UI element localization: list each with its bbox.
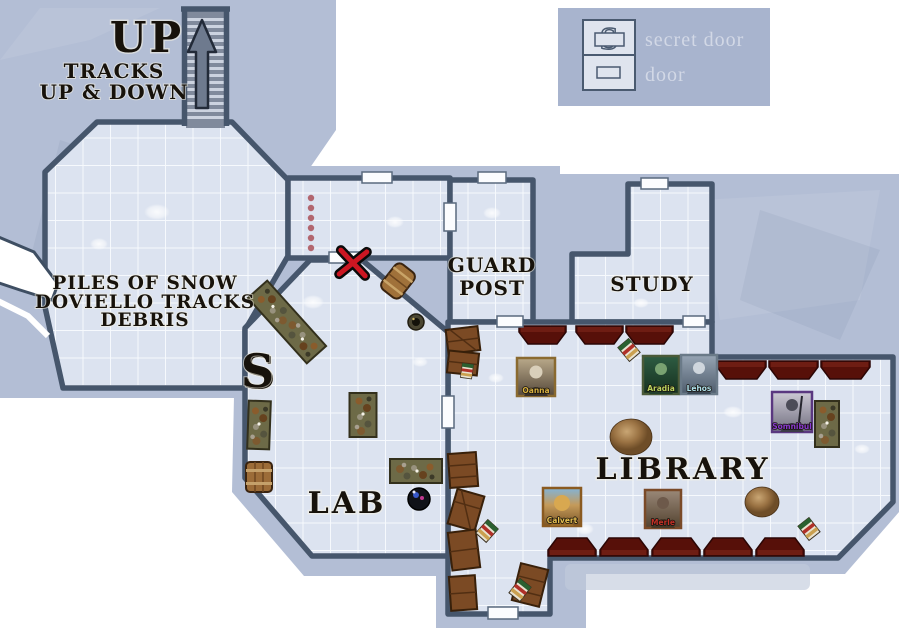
label-snow-1: PILES OF SNOW <box>52 273 237 294</box>
room-guard-post-floor <box>450 180 533 322</box>
legend: S secret door door <box>558 8 770 106</box>
lab-table <box>390 459 442 483</box>
portrait <box>693 362 705 374</box>
door[interactable] <box>497 316 523 327</box>
bench <box>717 361 766 379</box>
portrait <box>554 495 570 511</box>
dungeon-map-screenshot: Oanna Aradia Lehos Somnibul Calvert <box>0 0 902 628</box>
book-pile <box>460 363 473 379</box>
barrel <box>246 462 272 492</box>
portrait <box>530 366 543 379</box>
character-token[interactable]: Somnibul <box>772 392 812 432</box>
lab-table <box>815 401 839 447</box>
portrait <box>786 399 798 411</box>
label-snow-3: DEBRIS <box>100 310 189 331</box>
lab-table <box>350 393 377 437</box>
bench <box>576 326 623 344</box>
boulder <box>610 419 652 455</box>
bench <box>600 538 648 556</box>
portrait <box>655 363 667 375</box>
bench <box>769 361 818 379</box>
pot <box>408 314 424 330</box>
label-study: STUDY <box>610 272 693 296</box>
character-token[interactable]: Aradia <box>643 356 679 394</box>
bench <box>519 326 566 344</box>
boulder <box>745 487 779 517</box>
legend-secret-door-label: secret door <box>645 29 744 51</box>
bench <box>704 538 752 556</box>
door[interactable] <box>444 203 456 231</box>
door[interactable] <box>683 316 705 327</box>
token-name: Merle <box>651 518 675 527</box>
legend-door-label: door <box>645 64 686 86</box>
label-tracks-2: UP & DOWN <box>40 80 189 104</box>
scrying-orb[interactable] <box>408 488 430 510</box>
token-name: Oanna <box>522 386 549 395</box>
character-token[interactable]: Oanna <box>517 358 555 396</box>
door[interactable] <box>362 172 392 183</box>
door[interactable] <box>488 607 518 619</box>
dungeon-map-canvas: Oanna Aradia Lehos Somnibul Calvert <box>0 0 902 628</box>
lab-table <box>247 401 271 450</box>
portrait <box>657 497 669 509</box>
bench <box>626 326 673 344</box>
character-token[interactable]: Lehos <box>681 355 717 394</box>
label-lab: LAB <box>308 486 387 521</box>
lower-alcove-panel <box>565 564 810 590</box>
crate <box>448 452 478 488</box>
token-name: Somnibul <box>772 422 812 431</box>
door[interactable] <box>641 178 668 189</box>
crate <box>448 529 480 570</box>
token-name: Aradia <box>647 384 675 393</box>
label-up: UP <box>110 13 184 62</box>
stairs-up <box>181 8 230 128</box>
bench <box>821 361 870 379</box>
bench <box>548 538 596 556</box>
token-name: Calvert <box>547 516 578 525</box>
door[interactable] <box>478 172 506 183</box>
label-library: LIBRARY <box>595 452 770 487</box>
door[interactable] <box>442 396 454 428</box>
crate <box>449 575 477 611</box>
token-name: Lehos <box>687 384 712 393</box>
door-legend-icon <box>597 67 620 78</box>
character-token[interactable]: Calvert <box>543 488 581 526</box>
label-guard-2: POST <box>459 276 525 300</box>
character-token[interactable]: Merle <box>645 490 681 528</box>
label-guard-1: GUARD <box>448 253 536 277</box>
secret-door-marker[interactable]: S S <box>241 344 277 400</box>
svg-text:S: S <box>241 344 275 398</box>
bench <box>756 538 804 556</box>
bench <box>652 538 700 556</box>
